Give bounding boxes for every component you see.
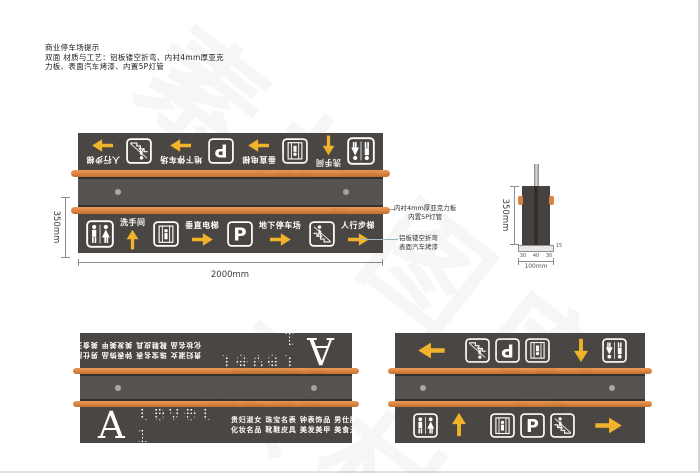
parking-icon [227, 221, 253, 247]
seg-dim-right: 30 [546, 253, 552, 259]
arrow-up-icon [450, 412, 468, 438]
width-dim-line [78, 262, 383, 263]
parking-icon [520, 413, 545, 438]
arrow-right-icon [169, 138, 193, 153]
callout-inner: 内衬4mm厚亚克力板 内置5P灯管 [394, 204, 456, 221]
spec-line-1: 双面 材质与工艺：铝板镂空折弯、内衬4mm厚亚克 [45, 53, 224, 63]
elevator-icon [153, 221, 179, 247]
side-view-column [522, 186, 550, 245]
height-dim-line [65, 197, 66, 258]
panel-mid-strip [80, 374, 352, 401]
sign-label: 人行步梯 [341, 220, 375, 231]
elevator-icon [525, 338, 550, 363]
panel-mid-strip [78, 177, 383, 207]
callout-leader [360, 239, 398, 240]
toilet-icon [347, 138, 375, 166]
arrow-up-icon [321, 135, 336, 157]
sign-label: 人行步梯 [86, 154, 120, 165]
sign-group-elevator: 垂直电梯 [153, 220, 219, 247]
orange-bar-edge [549, 196, 554, 205]
arrow-right-icon [91, 138, 115, 153]
mount-dot [420, 385, 426, 391]
stairs-icon [550, 413, 575, 438]
sign-group-stairs: 人行步梯 [86, 138, 152, 165]
callout-line: 铝板镂空折弯 [399, 234, 438, 243]
sign-label: 垂直电梯 [242, 154, 276, 165]
sign-label: 地下停车场 [259, 220, 302, 231]
arrow-right-icon [593, 416, 623, 435]
callout-line: 表面汽车烤漆 [399, 243, 438, 252]
seg-dim-mid: 40 [533, 253, 539, 259]
height-dim-label: 350mm [51, 211, 61, 244]
category-line: 化妆名品 靴鞋皮具 美发美甲 美食天地 [231, 425, 366, 435]
sign-group-toilet: 洗手间 [316, 135, 376, 169]
category-line: 化妆名品 靴鞋皮具 美发美甲 美食天地 [67, 341, 202, 351]
mount-dot [609, 385, 615, 391]
orange-bar-edge [518, 196, 523, 205]
parking-icon [208, 139, 234, 165]
arrow-right-icon [417, 341, 447, 360]
stairs-icon [465, 338, 490, 363]
level-number-text: level 1 [137, 401, 215, 449]
sign-label: 洗手间 [316, 158, 342, 169]
category-line: 贵妇淑女 珠宝名表 钟表饰品 男仕服装 [231, 415, 366, 425]
main-sign-back-row: 洗手间 垂直电梯 地下停车场 [78, 133, 383, 170]
toilet-icon [86, 220, 114, 248]
mount-dot [115, 189, 121, 195]
seg-dim-left: 30 [520, 253, 526, 259]
sign-group-parking: 地下停车场 [160, 138, 235, 165]
pictogram-sign-panel [395, 333, 645, 443]
level-letter: A [307, 332, 334, 369]
arrow-up-icon [125, 229, 140, 251]
design-sheet: 素材图库 素材图库 商业停车场提示 双面 材质与工艺：铝板镂空折弯、内衬4mm厚… [0, 0, 700, 473]
orange-lightbox-bar [73, 368, 359, 374]
side-width-dim-line [518, 261, 554, 262]
category-line: 贵妇淑女 珠宝名表 钟表饰品 男仕服装 [67, 351, 202, 361]
orange-lightbox-bar [71, 170, 390, 177]
level-category-text: 贵妇淑女 珠宝名表 钟表饰品 男仕服装 化妆名品 靴鞋皮具 美发美甲 美食天地 [231, 415, 366, 435]
side-view-seam [535, 186, 538, 245]
spec-line-2: 力板、表面汽车烤漆、内置5P灯管 [45, 62, 224, 72]
sign-group-elevator: 垂直电梯 [242, 138, 308, 165]
side-view-base [518, 245, 554, 252]
arrow-right-icon [190, 232, 214, 247]
doc-title: 商业停车场提示 [45, 43, 224, 53]
sign-group-toilet: 洗手间 [86, 217, 146, 251]
side-depth-dim-label: 15 [556, 243, 562, 249]
pictogram-front-row [395, 407, 645, 443]
panel-mid-strip [395, 374, 645, 401]
mount-dot [343, 189, 349, 195]
arrow-up-icon [572, 338, 590, 364]
spec-block: 商业停车场提示 双面 材质与工艺：铝板镂空折弯、内衬4mm厚亚克 力板、表面汽车… [45, 43, 224, 72]
orange-lightbox-bar [71, 207, 390, 214]
level-sign-back-row: A level 1 贵妇淑女 珠宝名表 钟表饰品 男仕服装 化妆名品 靴鞋皮具 … [80, 333, 352, 368]
side-view-pole [534, 164, 539, 186]
main-sign-front-row: 洗手间 垂直电梯 地下停车场 [78, 214, 383, 253]
sign-label: 地下停车场 [160, 154, 203, 165]
callout-outer: 铝板镂空折弯 表面汽车烤漆 [399, 234, 438, 251]
pictogram-back-row [395, 333, 645, 368]
orange-lightbox-bar [73, 401, 359, 407]
toilet-icon [602, 338, 627, 363]
elevator-icon [282, 139, 308, 165]
toilet-icon [413, 413, 438, 438]
orange-lightbox-bar [388, 368, 652, 374]
side-width-dim-label: 100mm [524, 263, 547, 270]
mount-dot [311, 385, 317, 391]
side-height-dim-label: 350mm [500, 199, 510, 232]
arrow-right-icon [268, 232, 292, 247]
sign-group-stairs: 人行步梯 [309, 220, 375, 247]
level-sign-panel: A level 1 贵妇淑女 珠宝名表 钟表饰品 男仕服装 化妆名品 靴鞋皮具 … [80, 333, 352, 443]
main-sign-panel: 洗手间 垂直电梯 地下停车场 [78, 133, 383, 253]
level-letter: A [98, 407, 125, 444]
sign-label: 洗手间 [120, 217, 146, 228]
callout-line: 内衬4mm厚亚克力板 [394, 204, 456, 213]
stairs-icon [126, 139, 152, 165]
parking-icon [495, 338, 520, 363]
sign-group-parking: 地下停车场 [227, 220, 302, 247]
level-sign-front-row: A level 1 贵妇淑女 珠宝名表 钟表饰品 男仕服装 化妆名品 靴鞋皮具 … [80, 407, 352, 443]
orange-lightbox-bar [388, 401, 652, 407]
elevator-icon [490, 413, 515, 438]
stairs-icon [309, 221, 335, 247]
mount-dot [115, 385, 121, 391]
side-height-dim-line [514, 186, 515, 245]
callout-line: 内置5P灯管 [394, 213, 456, 222]
arrow-right-icon [247, 138, 271, 153]
width-dim-label: 2000mm [211, 270, 249, 280]
level-category-text: 贵妇淑女 珠宝名表 钟表饰品 男仕服装 化妆名品 靴鞋皮具 美发美甲 美食天地 [67, 341, 202, 361]
sign-label: 垂直电梯 [185, 220, 219, 231]
